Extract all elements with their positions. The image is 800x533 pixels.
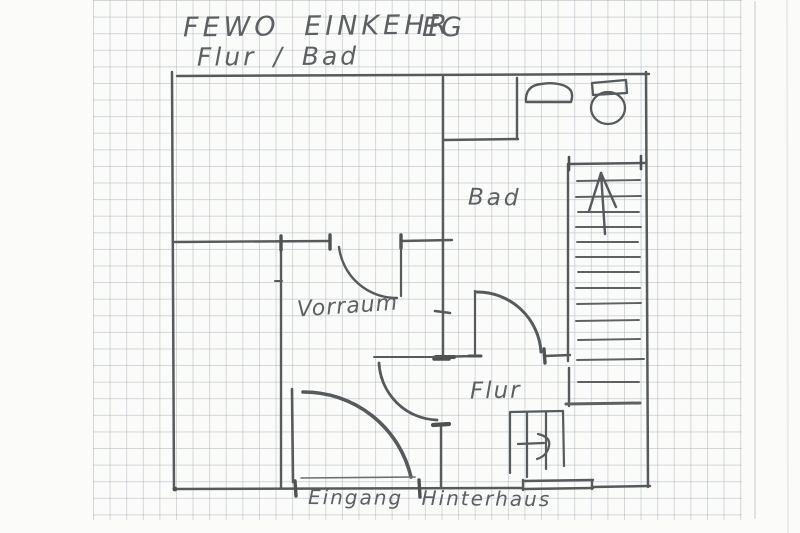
sheet-subtitle: Flur / Bad (197, 43, 359, 69)
floor-plan-drawing (0, 0, 800, 533)
room-label-bad: Bad (468, 187, 522, 211)
door-jamb-ticks (173, 156, 641, 497)
floor-plan-sketch: FEWO EINKEHR EG Flur / Bad Bad Vorraum F… (0, 0, 800, 533)
sheet-title: FEWO EINKEHR (183, 12, 451, 42)
outer-walls (172, 72, 650, 490)
floor-tag: EG (422, 14, 464, 41)
toilet-icon (591, 80, 627, 124)
inner-walls (175, 77, 645, 488)
sink-icon (526, 83, 572, 102)
entrance-label: Eingang Hinterhaus (308, 487, 551, 509)
room-label-flur: Flur (470, 380, 522, 404)
door-vorraum (339, 243, 401, 298)
main-staircase (566, 180, 644, 404)
stairs-up-arrow-icon (589, 173, 616, 234)
stairs-right-arrow-icon (518, 434, 549, 459)
page-edge-lines (755, 0, 788, 533)
door-bad (475, 291, 541, 355)
door-flur (374, 357, 440, 420)
